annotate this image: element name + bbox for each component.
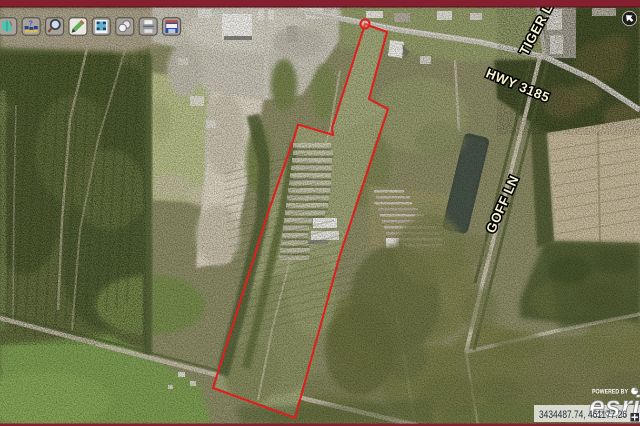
svg-text:?: ? <box>28 19 33 28</box>
svg-text:3434487.74, 461177.26: 3434487.74, 461177.26 <box>539 409 627 421</box>
